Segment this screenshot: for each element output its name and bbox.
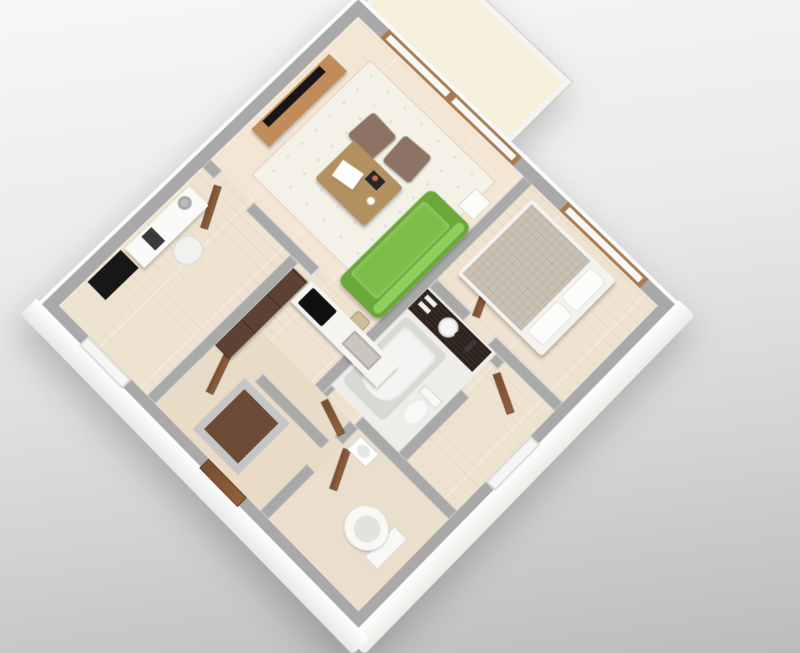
render-canvas [0,0,800,653]
floor-plan [40,0,676,631]
